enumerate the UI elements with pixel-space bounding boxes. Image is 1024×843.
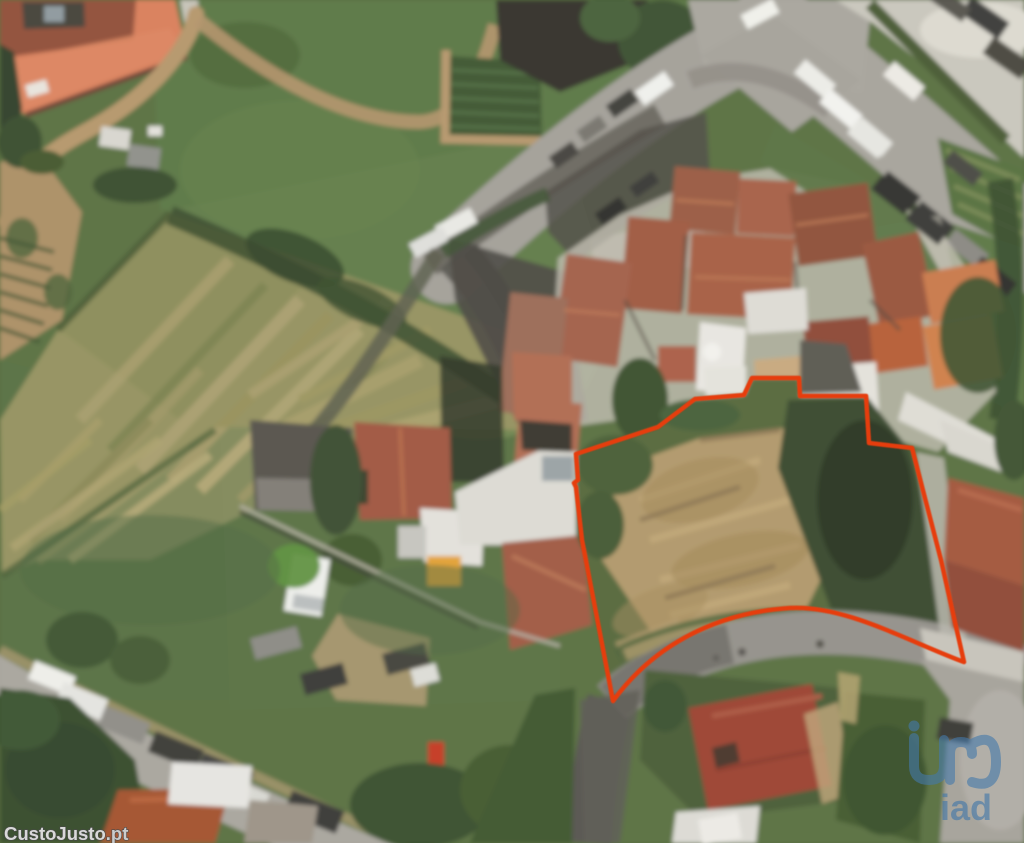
svg-text:CustoJusto.pt: CustoJusto.pt xyxy=(4,823,128,843)
svg-text:iad: iad xyxy=(940,787,992,828)
